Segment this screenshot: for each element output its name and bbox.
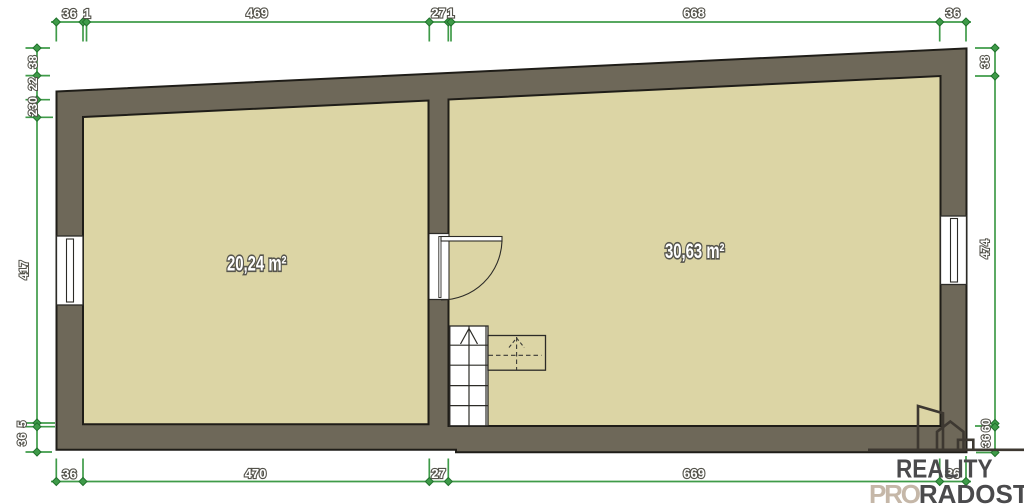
svg-text:1: 1 <box>447 6 454 21</box>
svg-text:36: 36 <box>946 6 960 21</box>
svg-text:474: 474 <box>980 239 992 259</box>
svg-text:38: 38 <box>980 55 992 68</box>
svg-text:669: 669 <box>683 466 705 481</box>
svg-text:20,24 m²: 20,24 m² <box>227 253 287 276</box>
svg-text:36: 36 <box>17 433 29 446</box>
svg-text:1: 1 <box>83 6 90 21</box>
svg-text:PRORADOST: PRORADOST <box>869 479 1024 504</box>
svg-text:38: 38 <box>28 55 40 68</box>
svg-text:30,63 m²: 30,63 m² <box>665 240 725 263</box>
svg-text:27: 27 <box>431 6 445 21</box>
svg-text:417: 417 <box>19 260 31 279</box>
svg-text:60: 60 <box>981 419 993 432</box>
svg-text:5: 5 <box>17 420 29 427</box>
svg-text:36: 36 <box>62 467 76 482</box>
svg-text:470: 470 <box>245 466 267 481</box>
svg-text:230: 230 <box>28 97 40 116</box>
svg-text:36: 36 <box>62 6 76 21</box>
svg-text:668: 668 <box>683 6 705 21</box>
svg-text:22: 22 <box>28 78 40 91</box>
svg-text:36: 36 <box>981 435 993 448</box>
svg-text:27: 27 <box>431 466 445 481</box>
svg-text:469: 469 <box>246 6 268 21</box>
